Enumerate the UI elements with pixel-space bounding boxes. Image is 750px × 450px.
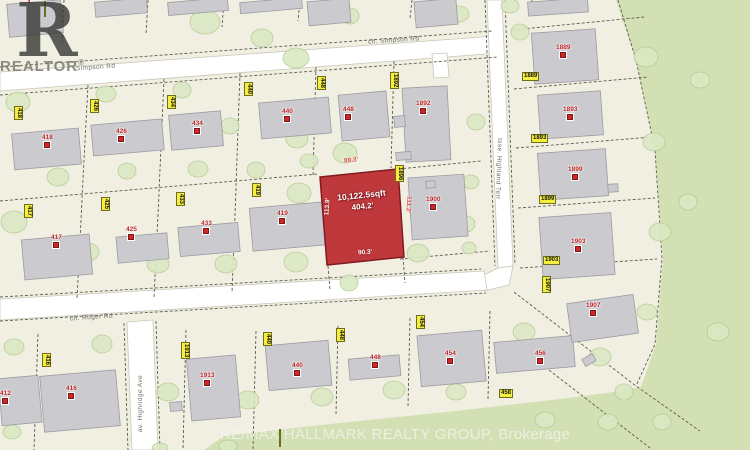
house-number: 4 [27, 0, 31, 6]
address-tag: 458 [499, 389, 513, 398]
house-number: 425 [126, 226, 137, 233]
house-number: 448 [370, 354, 381, 361]
address-tag: 454 [416, 315, 425, 329]
marker-dot-icon [420, 108, 426, 114]
address-tag: 419 [252, 183, 261, 197]
house-number-label: 433 [201, 220, 212, 234]
house-number: 1892 [416, 100, 430, 107]
address-tag: 1899 [539, 195, 556, 204]
house-number: 412 [0, 390, 11, 397]
address-tag: 418 [14, 106, 23, 120]
street-label-roger: ch. Roger Rd [70, 313, 113, 323]
marker-dot-icon [204, 380, 210, 386]
house-number-label: 1903 [571, 238, 585, 252]
marker-dot-icon [53, 242, 59, 248]
address-tag: 1903 [543, 256, 560, 265]
map-canvas[interactable]: Simpson Rd ch. Simpson Rd ch. Roger Rd t… [0, 0, 750, 450]
house-number: 1889 [556, 44, 570, 51]
address-tag: 1907 [542, 276, 551, 293]
address-tag: 1896 [395, 165, 404, 182]
house-number-label: 412 [0, 390, 11, 404]
marker-dot-icon [590, 310, 596, 316]
street-label-highland: tsse. Highland Terr [494, 138, 503, 200]
house-number: 440 [292, 362, 303, 369]
marker-dot-icon [279, 218, 285, 224]
house-number: 426 [116, 128, 127, 135]
marker-dot-icon [284, 116, 290, 122]
marker-dot-icon [194, 128, 200, 134]
house-number-label: 426 [116, 128, 127, 142]
house-number-label: 419 [277, 210, 288, 224]
brokerage-watermark: RE/MAX HALLMARK REALTY GROUP, Brokerage [220, 426, 570, 443]
house-number-label: 4 [27, 0, 31, 6]
address-tag: 426 [90, 99, 99, 113]
marker-dot-icon [2, 398, 8, 404]
house-number: 433 [201, 220, 212, 227]
house-number: 440 [282, 108, 293, 115]
house-number: 419 [277, 210, 288, 217]
house-number-label: 434 [192, 120, 203, 134]
marker-dot-icon [118, 136, 124, 142]
address-tag: 417 [24, 204, 33, 218]
address-tag [279, 429, 281, 447]
house-number-label: 417 [51, 234, 62, 248]
marker-dot-icon [44, 142, 50, 148]
address-tag: 425 [101, 197, 110, 211]
house-number-label: 448 [343, 106, 354, 120]
marker-dot-icon [128, 234, 134, 240]
address-tag: 448 [336, 328, 345, 342]
address-tag: 1913 [181, 342, 190, 359]
house-number: 434 [192, 120, 203, 127]
lot-dim-top: 89.3' [344, 156, 359, 164]
street-label-highridge: av. Highridge Ave [137, 375, 144, 432]
realtor-word: REALTOR [0, 58, 78, 75]
marker-dot-icon [537, 358, 543, 364]
house-number: 1900 [426, 196, 440, 203]
house-number-label: 1889 [556, 44, 570, 58]
house-number: 1893 [563, 106, 577, 113]
label-overlay: Simpson Rd ch. Simpson Rd ch. Roger Rd t… [0, 0, 750, 450]
address-tag: 433 [176, 192, 185, 206]
house-number-label: 1893 [563, 106, 577, 120]
house-number-label: 1892 [416, 100, 430, 114]
house-number: 416 [66, 385, 77, 392]
address-tag: 1892 [390, 72, 399, 89]
house-number: 1903 [571, 238, 585, 245]
house-number-label: 1907 [586, 302, 600, 316]
address-tag: 440 [244, 82, 253, 96]
house-number: 448 [343, 106, 354, 113]
house-number-label: 418 [42, 134, 53, 148]
address-tag: 440 [263, 332, 272, 346]
house-number-label: 425 [126, 226, 137, 240]
address-tag [44, 1, 46, 17]
marker-dot-icon [447, 358, 453, 364]
house-number: 418 [42, 134, 53, 141]
house-number: 1899 [568, 166, 582, 173]
marker-dot-icon [294, 370, 300, 376]
marker-dot-icon [567, 114, 573, 120]
realtor-r-icon: R [16, 0, 78, 74]
house-number-label: 416 [66, 385, 77, 399]
realtor-wordmark: REALTOR® [0, 58, 85, 75]
address-tag: 1893 [531, 134, 548, 143]
street-label-simpson-left: Simpson Rd [76, 63, 116, 73]
house-number-label: 454 [445, 350, 456, 364]
marker-dot-icon [575, 246, 581, 252]
house-number-label: 440 [282, 108, 293, 122]
marker-dot-icon [345, 114, 351, 120]
marker-dot-icon [68, 393, 74, 399]
street-label-simpson: ch. Simpson Rd [368, 35, 420, 46]
marker-dot-icon [203, 228, 209, 234]
house-number: 1913 [200, 372, 214, 379]
address-tag: 416 [42, 353, 51, 367]
marker-dot-icon [560, 52, 566, 58]
house-number-label: 1900 [426, 196, 440, 210]
house-number: 1907 [586, 302, 600, 309]
house-number: 454 [445, 350, 456, 357]
house-number-label: 1913 [200, 372, 214, 386]
marker-dot-icon [430, 204, 436, 210]
address-tag: 448 [317, 76, 326, 90]
house-number-label: 440 [292, 362, 303, 376]
house-number: 417 [51, 234, 62, 241]
lot-dim-bottom: 90.3' [358, 249, 373, 257]
address-tag: 434 [167, 95, 176, 109]
marker-dot-icon [572, 174, 578, 180]
address-tag: 1889 [522, 72, 539, 81]
house-number-label: 448 [370, 354, 381, 368]
house-number-label: 1899 [568, 166, 582, 180]
marker-dot-icon [372, 362, 378, 368]
house-number-label: 456 [535, 350, 546, 364]
lot-dim-right: 111.2' [404, 196, 412, 214]
house-number: 456 [535, 350, 546, 357]
